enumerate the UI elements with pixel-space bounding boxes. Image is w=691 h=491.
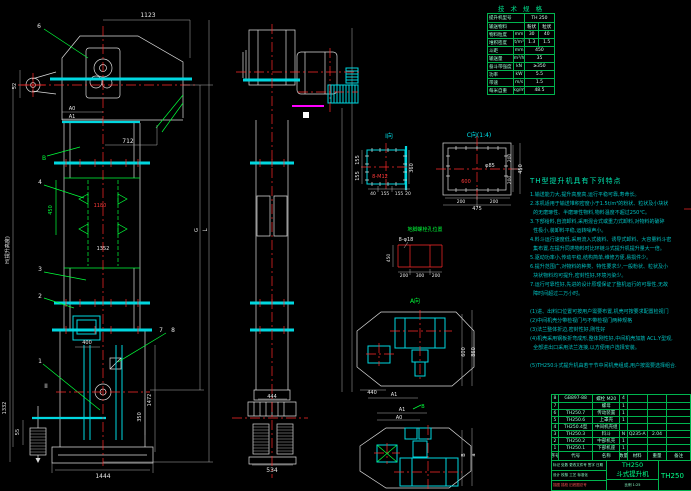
- bom-cell: 1: [620, 410, 628, 416]
- spec-cell: 35: [524, 55, 554, 62]
- dim-label: 1: [38, 358, 42, 365]
- feature-line: 的无磨琢性、半磨琢性物料,物料温度不超过250℃。: [530, 209, 691, 218]
- feature-line: 7.运行可靠性好,先进的设计原理保证了整机运行的可靠性,无故: [530, 281, 691, 290]
- feature-line: 2.本机适用于输送堆积密度小于1.5t/m³的粉状、粒状及小块状: [530, 200, 691, 209]
- bom-cell: TH250.7: [559, 410, 594, 416]
- spec-row: 功率kW5.5: [488, 70, 554, 78]
- bom-cell: 材料: [628, 452, 648, 460]
- dim-label: 600: [461, 179, 471, 185]
- bom-cell: [628, 445, 648, 451]
- bom-cell: 螺母: [593, 403, 620, 409]
- feature-notes-title: TH型提升机具有下列特点: [530, 176, 691, 186]
- dim-label: 8: [171, 327, 175, 334]
- spec-cell: 粉状: [524, 23, 539, 30]
- bom-cell: 1: [552, 445, 559, 451]
- bom-cell: 6: [552, 410, 559, 416]
- dim-label: 3: [38, 266, 42, 273]
- bom-cell: 上罩壳: [593, 417, 620, 423]
- bom-cell: [648, 417, 668, 423]
- anchor-bolt-layout-detail: [393, 242, 442, 275]
- feature-line: (3)法兰整体折边,密封性好,刚性好: [530, 326, 691, 335]
- dim-label: a: [471, 453, 477, 456]
- bom-cell: [620, 424, 628, 430]
- dim-label: 200: [490, 199, 499, 205]
- bom-header-row: 序号代号名称数量材料重量备注: [552, 451, 690, 460]
- side-elevation-view: [232, 24, 360, 478]
- bom-cell: GB897-88: [559, 395, 594, 402]
- spec-cell: 每米自重: [488, 87, 513, 94]
- title-block-revision-grid: 标记 处数 更改文件号 签字 日期设计 校核 工艺 标准化描图 描校 旧底图总号: [552, 461, 607, 490]
- head-plan-view: [357, 310, 474, 390]
- spec-cell: 5.5: [524, 71, 554, 78]
- feature-line: 障时间超过二万小时。: [530, 290, 691, 299]
- bom-cell: [667, 424, 690, 430]
- dim-label: B: [461, 453, 467, 457]
- spec-row: 输送量m³/h35: [488, 54, 554, 62]
- dim-label: 450: [518, 164, 524, 174]
- bom-row: 8GB897-88螺栓 M204: [552, 395, 690, 402]
- bom-cell: Q235-A: [628, 431, 648, 437]
- flange-detail-view-c: [436, 136, 523, 207]
- bom-cell: 中部机壳: [593, 438, 620, 444]
- spec-cell: 1.5: [524, 79, 554, 86]
- drive-plan-view: [360, 398, 472, 490]
- bom-cell: 1: [620, 438, 628, 444]
- bom-cell: [648, 438, 668, 444]
- bom-cell: 1: [620, 403, 628, 409]
- feature-line: 3.下部给料,自流卸料,采用混合式或重力式卸料,对物料的破碎: [530, 218, 691, 227]
- dim-label: 8-φ18: [399, 237, 414, 243]
- dim-label: 1444: [95, 473, 110, 480]
- title-block-row: 标记 处数 更改文件号 签字 日期: [552, 461, 606, 470]
- dim-label: 2: [38, 293, 42, 300]
- spec-cell: ≥350: [524, 63, 554, 70]
- spec-cell: TH 250: [524, 14, 554, 22]
- spec-cell: kW: [513, 71, 524, 78]
- feature-line: 4.料斗运行速度低,采用流入式装料、诱导式卸料、大容量料斗密: [530, 236, 691, 245]
- feature-line: 块状物料均可提升,密封性好,环境污染少。: [530, 272, 691, 281]
- bom-cell: [628, 410, 648, 416]
- spec-cell: kN: [513, 63, 524, 70]
- dim-label: 55: [15, 429, 21, 435]
- dim-label: I向: [385, 132, 393, 140]
- dim-label: 8-M12: [372, 174, 388, 180]
- dim-label: II: [44, 383, 48, 390]
- dim-label: 52: [12, 83, 18, 89]
- bom-cell: 4: [552, 424, 559, 430]
- spec-cell: 450: [524, 47, 554, 54]
- spec-table: 提升机型号TH 250输送物料粉状粒状物料粒度mm3040堆积密度t/m³1.3…: [487, 13, 555, 95]
- dim-label: 7: [159, 327, 163, 334]
- spec-row: 堆积密度t/m³1.31.5: [488, 38, 554, 46]
- bom-cell: [628, 395, 648, 402]
- feature-line: (5)TH250斗式提升机由若干节中间机壳组成,用户按需要选择组合.: [530, 362, 691, 371]
- bom-cell: 中间机壳组: [593, 424, 620, 430]
- dim-label: 1180: [94, 203, 107, 209]
- spec-cell: m³/h: [513, 55, 524, 62]
- feature-line: 集布置,在提升同类物料时比环链斗式提升机提升量大一倍。: [530, 245, 691, 254]
- title-block-product-name: 斗式提升机: [607, 470, 658, 479]
- feature-line: (4)机壳采用钢板折弯成形,整体刚性好,中间机壳加筋 ACL.Y型观,: [530, 335, 691, 344]
- spec-cell: mm: [513, 31, 524, 38]
- dim-label: 1332: [2, 402, 8, 415]
- bom-cell: TH250.4型: [559, 424, 594, 430]
- bom-cell: 1: [620, 417, 628, 423]
- dim-label: 350: [137, 412, 143, 422]
- bom-row: 5TH250.6上罩壳1: [552, 416, 690, 423]
- spec-row: 提升机型号TH 250: [488, 14, 554, 22]
- dim-label: 360: [409, 163, 415, 173]
- feature-line: 全部进出口采用法兰连接,以方便用户选择安装。: [530, 344, 691, 353]
- spec-cell: kg/m: [513, 87, 524, 94]
- title-block: 标记 处数 更改文件号 签字 日期设计 校核 工艺 标准化描图 描校 旧底图总号…: [551, 460, 691, 491]
- dim-label: 6: [37, 23, 41, 30]
- spec-row: 斗距mm450: [488, 46, 554, 54]
- title-block-drawing-number: TH250: [659, 461, 691, 490]
- spec-cell: 30: [524, 31, 539, 38]
- feature-line: 5.驱动功率小,传动平稳,结构简单,维修方便,易损件少。: [530, 254, 691, 263]
- feature-line: 6.提升范围广,对物料的种类、特性要求少,一般粉状、粒状及小: [530, 263, 691, 272]
- dim-label: 40: [370, 191, 376, 197]
- bom-cell: [667, 403, 690, 409]
- bom-cell: [667, 431, 690, 437]
- dim-label: A1: [399, 407, 406, 413]
- bom-cell: 7: [552, 403, 559, 409]
- dim-label: 4: [38, 179, 42, 186]
- bom-cell: 8: [552, 395, 559, 402]
- drawing-canvas[interactable]: 1123652A0A1712B44501180135232H(提升高度)GL78…: [0, 0, 691, 491]
- dim-label: 450: [48, 205, 54, 215]
- dim-label: 600: [461, 347, 467, 357]
- dim-label: A1: [391, 392, 398, 398]
- dim-label: 1123: [140, 12, 155, 19]
- bom-cell: [667, 445, 690, 451]
- bom-cell: [648, 445, 668, 451]
- bom-cell: [667, 438, 690, 444]
- feature-line: 性极小,装卸料平稳,运转噪声小。: [530, 227, 691, 236]
- dim-label: 200: [400, 273, 409, 279]
- dim-label: 地脚螺栓孔位置: [407, 226, 442, 233]
- dim-label: A0: [69, 106, 76, 112]
- dim-label: 1472: [147, 394, 153, 407]
- bom-cell: [667, 417, 690, 423]
- dim-label: 155: [395, 191, 404, 197]
- bom-row: 1TH250.1下部机座1: [552, 444, 690, 451]
- spec-cell: 输送物料: [488, 23, 524, 30]
- dim-label: A0: [396, 415, 403, 421]
- spec-cell: 功率: [488, 71, 513, 78]
- spec-cell: 48.5: [524, 87, 554, 94]
- dim-label: 860: [471, 347, 477, 357]
- feature-notes: TH型提升机具有下列特点 1.输送能力大,提升高度高,运行平稳可靠,寿命长。2.…: [530, 176, 691, 371]
- bom-cell: TH250.6: [559, 417, 594, 423]
- spec-cell: mm: [513, 47, 524, 54]
- bom-row: 2TH250.2中部机壳1: [552, 437, 690, 444]
- spec-cell: 物料粒度: [488, 31, 513, 38]
- bom-cell: TH250.2: [559, 438, 594, 444]
- bom-cell: 重量: [648, 452, 668, 460]
- spec-cell: t/m³: [513, 39, 524, 46]
- bom-row: 4TH250.4型中间机壳组: [552, 423, 690, 430]
- feature-line: [530, 299, 691, 308]
- spec-cell: 带速: [488, 79, 513, 86]
- feature-line: [530, 353, 691, 362]
- bom-cell: N: [620, 431, 628, 437]
- bom-cell: 料斗: [593, 431, 620, 437]
- bom-cell: 5: [552, 417, 559, 423]
- bom-cell: [648, 403, 668, 409]
- dim-label: B: [42, 155, 46, 162]
- spec-table-title: 技 术 规 格: [482, 3, 560, 13]
- dim-label: 534: [266, 467, 278, 474]
- dim-label: 450: [386, 254, 392, 263]
- dim-label: 155: [355, 171, 361, 181]
- flange-detail-view-i: [361, 143, 410, 192]
- dim-label: 444: [267, 394, 277, 400]
- spec-cell: 1.5: [538, 39, 554, 46]
- dim-label: 20: [405, 191, 411, 197]
- dim-label: 200: [507, 154, 513, 163]
- feature-line: (2)中间机壳分带检视门与不带检视门两种规格: [530, 317, 691, 326]
- bom-cell: [648, 410, 668, 416]
- bom-cell: 螺栓 M20: [593, 395, 620, 402]
- dim-label: 440: [367, 390, 377, 396]
- title-block-center: TH250 斗式提升机 比例 1:25: [607, 461, 659, 490]
- title-block-row: 设计 校核 工艺 标准化: [552, 470, 606, 480]
- spec-cell: 畚斗带强度: [488, 63, 513, 70]
- dim-label: C向(1:4): [467, 131, 492, 139]
- spec-row: 畚斗带强度kN≥350: [488, 62, 554, 70]
- spec-cell: 40: [538, 31, 554, 38]
- dim-label: L: [202, 228, 209, 232]
- bom-cell: 代号: [559, 452, 594, 460]
- bom-cell: 备注: [667, 452, 690, 460]
- bom-cell: 传动装置: [593, 410, 620, 416]
- dim-label: 1352: [97, 246, 110, 252]
- spec-cell: 粒状: [538, 23, 554, 30]
- bom-cell: 2.04: [648, 431, 668, 437]
- dim-label: 200: [432, 273, 441, 279]
- dim-label: 200: [457, 199, 466, 205]
- bom-cell: TH250.1: [559, 445, 594, 451]
- bom-cell: 4: [620, 395, 628, 402]
- bom-cell: 2: [552, 438, 559, 444]
- title-block-model: TH250: [607, 461, 658, 470]
- bom-cell: 数量: [620, 452, 628, 460]
- bom-cell: [628, 424, 648, 430]
- dim-label: A向: [410, 297, 420, 305]
- section-marker: [303, 112, 309, 118]
- bom-cell: [667, 410, 690, 416]
- spec-row: 每米自重kg/m48.5: [488, 86, 554, 94]
- spec-cell: 1.3: [524, 39, 539, 46]
- dim-label: 155: [381, 191, 390, 197]
- dim-label: φ85: [485, 163, 495, 169]
- spec-cell: 堆积密度: [488, 39, 513, 46]
- dim-label: B: [421, 404, 425, 410]
- spec-row: 输送物料粉状粒状: [488, 22, 554, 30]
- bom-cell: 1: [620, 445, 628, 451]
- feature-line: (1)进、出料口位置可按用户需要布置,机壳可按要求配置检视门: [530, 308, 691, 317]
- bom-cell: 名称: [593, 452, 620, 460]
- dim-label: 475: [472, 206, 482, 212]
- bom-cell: [559, 403, 594, 409]
- spec-cell: 提升机型号: [488, 14, 524, 22]
- dim-label: 400: [82, 340, 92, 346]
- spec-cell: 斗距: [488, 47, 513, 54]
- bom-cell: [628, 438, 648, 444]
- spec-cell: 输送量: [488, 55, 513, 62]
- bom-table: 8GB897-88螺栓 M2047螺母16TH250.7传动装置15TH250.…: [551, 394, 691, 461]
- bom-row: 7螺母1: [552, 402, 690, 409]
- bom-cell: 下部机座: [593, 445, 620, 451]
- spec-row: 物料粒度mm3040: [488, 30, 554, 38]
- bom-cell: [648, 424, 668, 430]
- bom-row: 3TH250.3料斗NQ235-A2.04: [552, 430, 690, 437]
- bom-cell: 3: [552, 431, 559, 437]
- bom-row: 6TH250.7传动装置1: [552, 409, 690, 416]
- bom-cell: [628, 403, 648, 409]
- dim-label: 712: [122, 138, 134, 145]
- dimension-labels-layer: 1123652A0A1712B44501180135232H(提升高度)GL78…: [2, 12, 524, 480]
- bom-cell: TH250.3: [559, 431, 594, 437]
- feature-line: 1.输送能力大,提升高度高,运行平稳可靠,寿命长。: [530, 191, 691, 200]
- bom-cell: [648, 395, 668, 402]
- dim-label: G: [194, 228, 200, 232]
- bom-cell: [667, 395, 690, 402]
- bom-cell: 序号: [552, 452, 559, 460]
- spec-cell: m/s: [513, 79, 524, 86]
- dim-label: A1: [69, 114, 76, 120]
- dim-label: 155: [355, 155, 361, 165]
- dim-label: 200: [507, 176, 513, 185]
- dim-label: H(提升高度): [4, 236, 11, 264]
- dim-label: 300: [416, 273, 425, 279]
- bom-cell: [628, 417, 648, 423]
- title-block-row: 描图 描校 旧底图总号: [552, 480, 606, 490]
- front-elevation-view: [10, 20, 213, 473]
- spec-row: 带速m/s1.5: [488, 78, 554, 86]
- title-block-scale: 比例 1:25: [607, 479, 658, 490]
